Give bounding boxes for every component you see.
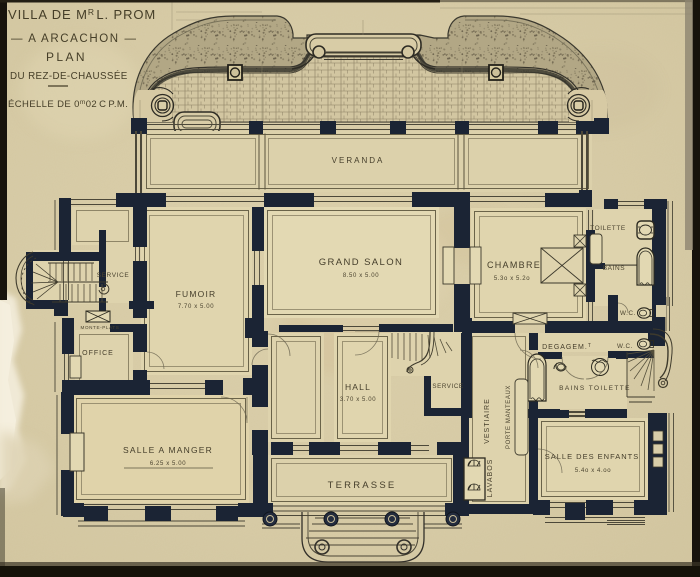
svg-text:7.70 x 5.00: 7.70 x 5.00 <box>178 304 214 310</box>
svg-text:GRAND SALON: GRAND SALON <box>319 257 404 268</box>
svg-text:CHAMBRE: CHAMBRE <box>487 260 541 270</box>
svg-text:BAINS TOILETTE: BAINS TOILETTE <box>559 385 631 392</box>
svg-text:VESTIAIRE: VESTIAIRE <box>484 398 491 444</box>
svg-text:SERVICE: SERVICE <box>97 272 130 279</box>
svg-text:5.4o x 4.oo: 5.4o x 4.oo <box>575 468 611 474</box>
svg-text:DEGAGEM.T: DEGAGEM.T <box>542 343 592 351</box>
svg-text:5.3o x 5.2o: 5.3o x 5.2o <box>494 276 530 282</box>
svg-text:LAVABOS: LAVABOS <box>487 459 494 498</box>
svg-text:W.C.: W.C. <box>617 343 633 350</box>
svg-text:DU REZ-DE-CHAUSSÉE: DU REZ-DE-CHAUSSÉE <box>10 71 128 82</box>
svg-text:8.50 x 5.00: 8.50 x 5.00 <box>343 273 379 279</box>
svg-text:PLAN: PLAN <box>46 50 87 64</box>
svg-text:MONTE-PLATS: MONTE-PLATS <box>81 325 120 330</box>
svg-text:VERANDA: VERANDA <box>332 156 385 165</box>
svg-text:— A ARCACHON —: — A ARCACHON — <box>11 33 138 45</box>
svg-text:VILLA DE MRL. PROM: VILLA DE MRL. PROM <box>8 7 156 22</box>
svg-text:SALLE A MANGER: SALLE A MANGER <box>123 445 213 455</box>
svg-text:SALLE DES ENFANTS: SALLE DES ENFANTS <box>545 452 640 461</box>
svg-text:TERRASSE: TERRASSE <box>328 480 397 491</box>
svg-text:TOILETTE: TOILETTE <box>590 225 626 232</box>
svg-text:PORTE MANTEAUX: PORTE MANTEAUX <box>506 385 512 449</box>
svg-text:6.25 x 5.00: 6.25 x 5.00 <box>150 461 186 467</box>
svg-text:SERVICE: SERVICE <box>432 383 463 390</box>
svg-text:3.70 x 5.00: 3.70 x 5.00 <box>340 397 376 403</box>
svg-text:OFFICE: OFFICE <box>82 350 114 357</box>
svg-text:BAINS: BAINS <box>603 265 626 272</box>
svg-text:HALL: HALL <box>345 382 371 392</box>
svg-text:FUMOIR: FUMOIR <box>176 289 217 299</box>
svg-text:ÉCHELLE DE 0m02CP.M.: ÉCHELLE DE 0m02CP.M. <box>8 99 128 110</box>
svg-text:W.C.: W.C. <box>620 310 636 317</box>
